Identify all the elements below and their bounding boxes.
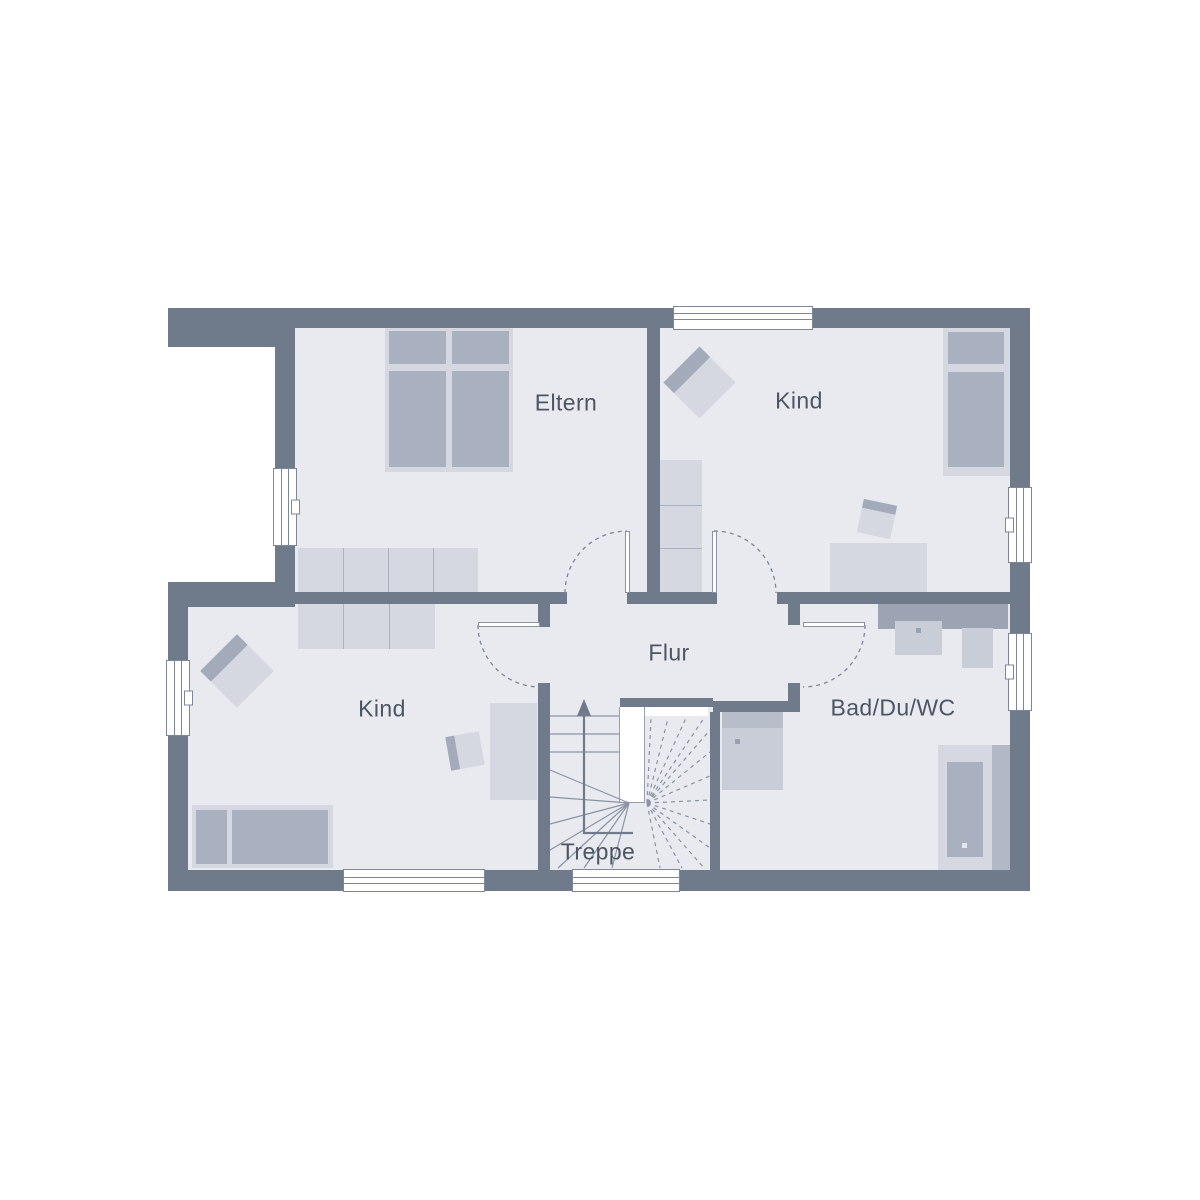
floor-plan: Eltern Kind Kind Flur Bad/Du/WC Treppe [0, 0, 1200, 1200]
plan-linework [0, 0, 1200, 1200]
room-label-treppe: Treppe [561, 839, 635, 866]
room-label-kind-top: Kind [775, 388, 823, 415]
door-leaf-eltern [625, 531, 630, 593]
stair-treads-above [647, 718, 710, 868]
floor-plan-page: Eltern Kind Kind Flur Bad/Du/WC Treppe [0, 0, 1200, 1200]
door-leaf-kind-top [712, 531, 717, 593]
room-label-bad: Bad/Du/WC [830, 695, 955, 722]
room-label-flur: Flur [648, 640, 689, 667]
room-label-eltern: Eltern [535, 390, 597, 417]
door-leaf-kind-bottom [478, 622, 540, 627]
room-label-kind-bottom: Kind [358, 696, 406, 723]
door-leaf-bath [803, 622, 865, 627]
stair-direction-arrow [577, 699, 633, 833]
